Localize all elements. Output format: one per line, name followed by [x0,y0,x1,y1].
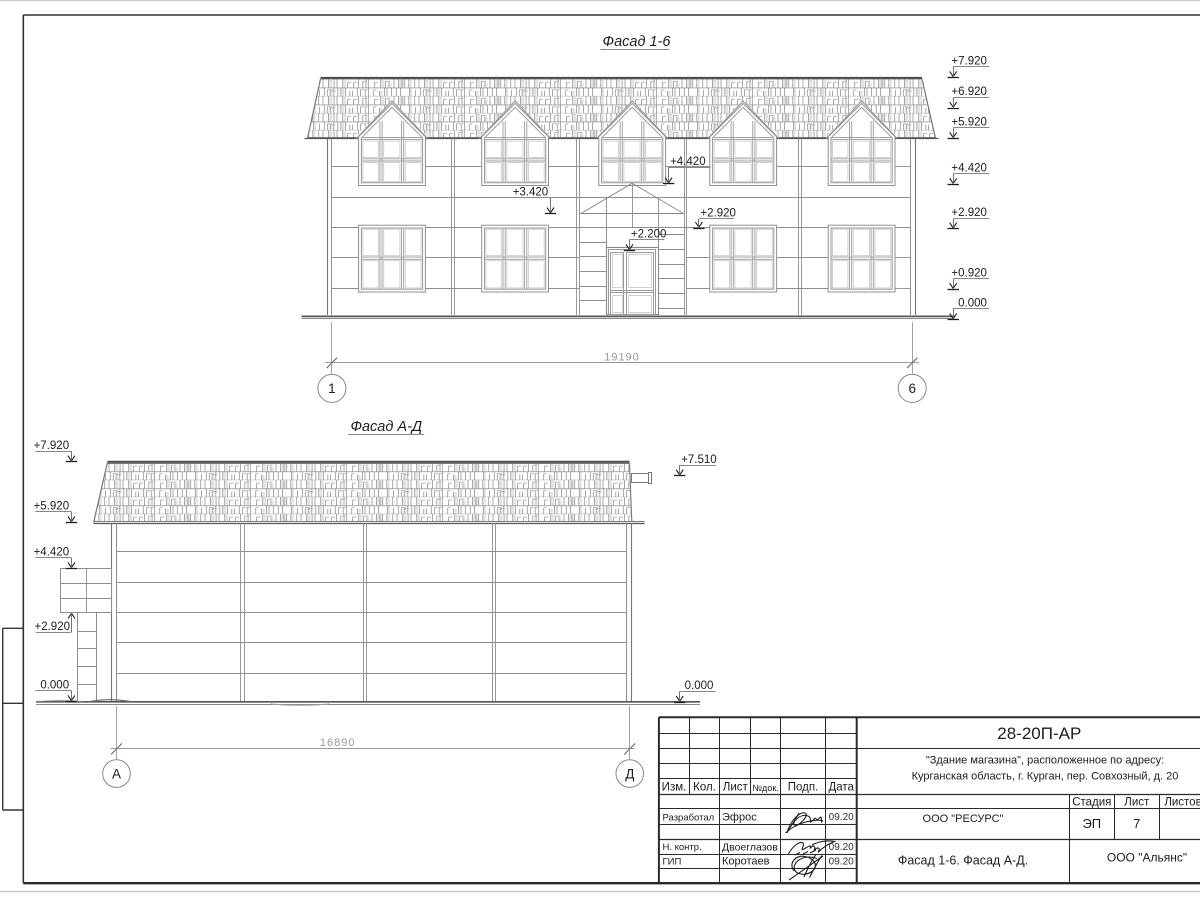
svg-text:Дата: Дата [828,781,854,793]
svg-text:ЭП: ЭП [1082,816,1101,831]
svg-text:+2.920: +2.920 [951,207,987,219]
svg-text:1: 1 [328,381,336,396]
svg-text:А: А [112,766,121,781]
svg-text:Н. контр.: Н. контр. [663,842,702,853]
svg-text:+4.420: +4.420 [34,547,70,559]
svg-text:Эфрос: Эфрос [722,811,757,823]
svg-text:Листов: Листов [1164,796,1200,808]
svg-text:19190: 19190 [604,352,640,364]
svg-text:Стадия: Стадия [1072,796,1111,808]
svg-text:+3.420: +3.420 [513,187,549,199]
svg-text:16890: 16890 [320,737,356,749]
svg-text:Лист: Лист [723,781,749,793]
svg-text:09.20: 09.20 [829,856,854,867]
svg-text:+5.920: +5.920 [34,501,70,513]
svg-text:Д: Д [625,766,634,781]
svg-text:"Здание магазина", расположенн: "Здание магазина", расположенное по адре… [926,755,1164,767]
svg-text:+2.920: +2.920 [35,621,71,633]
svg-text:+2.920: +2.920 [700,208,736,220]
svg-text:+0.920: +0.920 [951,267,987,279]
svg-text:Лист: Лист [1124,796,1150,808]
svg-text:28-20П-АР: 28-20П-АР [997,724,1081,743]
svg-text:Курганская область, г. Курган,: Курганская область, г. Курган, пер. Совх… [912,771,1179,783]
svg-text:Двоеглазов: Двоеглазов [722,841,778,853]
svg-text:7: 7 [1133,816,1140,831]
svg-text:Фасад А-Д: Фасад А-Д [350,419,422,435]
svg-text:ООО "РЕСУРС": ООО "РЕСУРС" [923,813,1004,825]
svg-text:Кол.: Кол. [693,781,716,793]
svg-text:Изм.: Изм. [662,781,687,793]
svg-text:+4.420: +4.420 [951,163,987,175]
svg-text:6: 6 [908,381,916,396]
svg-text:Подп.: Подп. [788,781,819,793]
svg-text:+4.420: +4.420 [670,156,706,168]
svg-text:Коротаев: Коротаев [722,856,770,868]
svg-text:0.000: 0.000 [958,298,987,310]
svg-text:Фасад 1-6. Фасад А-Д.: Фасад 1-6. Фасад А-Д. [898,854,1028,868]
svg-text:+7.510: +7.510 [681,454,717,466]
svg-text:09.20: 09.20 [829,812,854,823]
svg-text:+7.920: +7.920 [34,440,70,452]
svg-text:№док.: №док. [752,783,778,793]
svg-text:+6.920: +6.920 [951,86,987,98]
svg-text:ООО "Альянс": ООО "Альянс" [1107,851,1187,865]
svg-text:Разработал: Разработал [663,812,715,823]
svg-text:Фасад 1-6: Фасад 1-6 [603,34,672,50]
svg-text:0.000: 0.000 [40,680,69,692]
svg-text:+5.920: +5.920 [951,117,987,129]
svg-text:0.000: 0.000 [685,680,714,692]
svg-text:+7.920: +7.920 [951,56,987,68]
svg-text:ГИП: ГИП [663,856,682,867]
svg-text:09.20: 09.20 [829,842,854,853]
svg-text:+2.200: +2.200 [631,229,667,241]
